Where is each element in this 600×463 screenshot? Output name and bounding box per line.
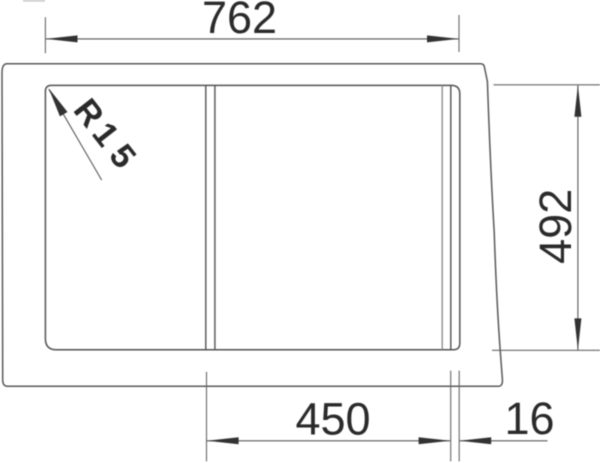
- svg-text:762: 762: [202, 0, 277, 43]
- svg-text:450: 450: [295, 394, 370, 445]
- svg-text:16: 16: [504, 393, 554, 444]
- svg-text:492: 492: [530, 189, 581, 264]
